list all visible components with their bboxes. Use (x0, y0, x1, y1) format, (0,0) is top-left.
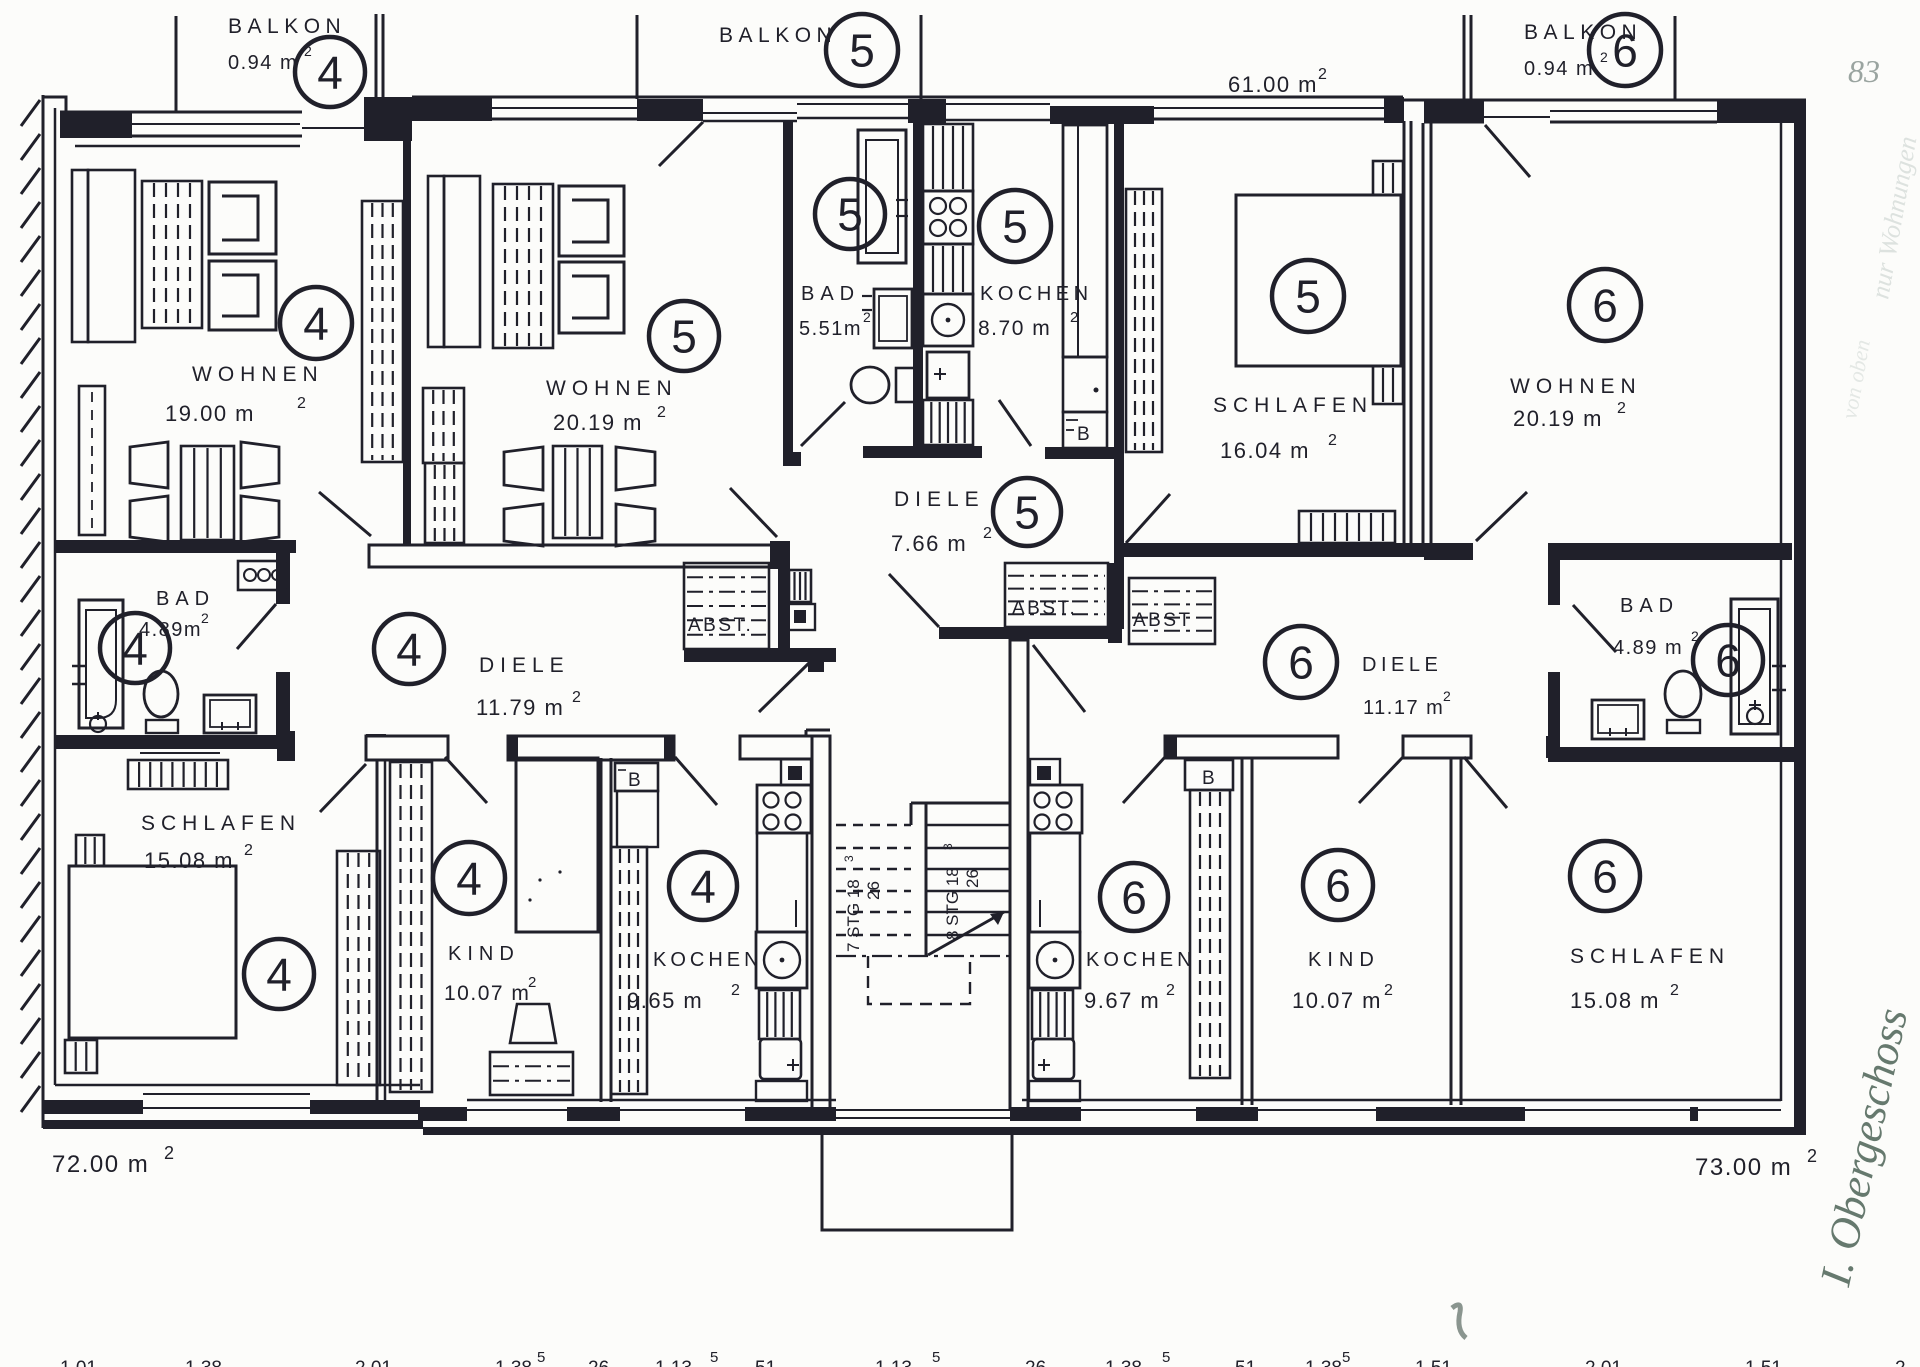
svg-text:BALKON: BALKON (719, 24, 837, 47)
svg-text:20.19 m: 20.19 m (1513, 406, 1603, 431)
svg-text:2.01: 2.01 (355, 1358, 392, 1367)
svg-text:2: 2 (297, 395, 306, 412)
svg-text:BAD: BAD (156, 588, 215, 610)
svg-text:9.67 m: 9.67 m (1084, 988, 1160, 1013)
svg-text:1.01: 1.01 (60, 1358, 97, 1367)
svg-text:4: 4 (303, 298, 329, 350)
svg-text:7.66 m: 7.66 m (891, 531, 967, 556)
svg-text:5.51m: 5.51m (799, 318, 862, 340)
svg-text:51: 51 (1235, 1358, 1256, 1367)
svg-text:5: 5 (932, 1349, 940, 1366)
svg-text:5: 5 (1162, 1349, 1170, 1366)
svg-text:1.38: 1.38 (1305, 1358, 1342, 1367)
svg-text:DIELE: DIELE (479, 654, 570, 677)
svg-text:2: 2 (1895, 1358, 1906, 1367)
svg-text:WOHNEN: WOHNEN (192, 363, 324, 386)
svg-text:5: 5 (849, 25, 875, 77)
svg-text:2: 2 (657, 404, 666, 421)
svg-text:ABST.: ABST. (688, 615, 753, 636)
svg-text:2: 2 (528, 974, 536, 991)
svg-text:8 STG 18: 8 STG 18 (943, 867, 962, 940)
svg-text:19.00 m: 19.00 m (165, 401, 255, 426)
svg-text:WOHNEN: WOHNEN (1510, 375, 1642, 398)
svg-text:5: 5 (1295, 271, 1321, 323)
svg-text:B: B (1202, 768, 1215, 789)
svg-text:5: 5 (1002, 201, 1028, 253)
svg-text:2: 2 (983, 525, 992, 542)
svg-text:KOCHEN: KOCHEN (980, 283, 1093, 305)
svg-text:DIELE: DIELE (894, 488, 985, 511)
svg-text:KOCHEN: KOCHEN (653, 949, 763, 971)
svg-text:WOHNEN: WOHNEN (546, 377, 678, 400)
svg-text:11.17 m: 11.17 m (1363, 697, 1444, 719)
svg-text:7 STG 18: 7 STG 18 (844, 879, 863, 952)
svg-text:2.01: 2.01 (1585, 1358, 1622, 1367)
svg-text:83: 83 (1848, 53, 1880, 89)
svg-text:2: 2 (1443, 688, 1451, 704)
svg-text:6: 6 (1612, 25, 1638, 77)
svg-text:4.89m: 4.89m (139, 619, 202, 641)
svg-text:26: 26 (864, 881, 883, 900)
svg-text:73.00 m: 73.00 m (1695, 1154, 1792, 1181)
svg-text:2: 2 (1600, 49, 1608, 65)
svg-text:61.00 m: 61.00 m (1228, 72, 1318, 97)
svg-text:10.07 m: 10.07 m (444, 982, 530, 1005)
svg-text:5: 5 (1014, 487, 1040, 539)
svg-text:4: 4 (690, 861, 716, 913)
svg-text:9.65 m: 9.65 m (627, 988, 703, 1013)
svg-text:1.38: 1.38 (1105, 1358, 1142, 1367)
svg-text:BALKON: BALKON (228, 15, 346, 38)
svg-text:2: 2 (1670, 982, 1679, 999)
svg-text:26: 26 (963, 869, 982, 888)
svg-text:DIELE: DIELE (1362, 654, 1442, 676)
svg-text:2: 2 (572, 689, 581, 706)
svg-text:KIND: KIND (1308, 949, 1380, 971)
svg-text:SCHLAFEN: SCHLAFEN (141, 812, 301, 835)
svg-text:72.00 m: 72.00 m (52, 1151, 149, 1178)
svg-text:4: 4 (266, 949, 292, 1001)
svg-text:3: 3 (941, 843, 955, 850)
svg-text:6: 6 (1715, 635, 1741, 687)
svg-text:15.08 m: 15.08 m (1570, 988, 1660, 1013)
svg-text:2: 2 (1691, 628, 1699, 644)
svg-text:B: B (1077, 424, 1090, 445)
svg-text:2: 2 (244, 842, 253, 859)
svg-text:4: 4 (456, 853, 482, 905)
svg-text:2: 2 (1328, 432, 1337, 449)
svg-text:SCHLAFEN: SCHLAFEN (1570, 945, 1730, 968)
svg-text:5: 5 (710, 1349, 718, 1366)
svg-text:1.13: 1.13 (655, 1358, 692, 1367)
svg-text:26: 26 (588, 1358, 609, 1367)
svg-text:4: 4 (317, 47, 343, 99)
svg-text:2: 2 (1617, 400, 1626, 417)
svg-text:1.38: 1.38 (185, 1358, 222, 1367)
svg-text:2: 2 (164, 1143, 174, 1163)
svg-text:SCHLAFEN: SCHLAFEN (1213, 394, 1373, 417)
svg-text:15.08 m: 15.08 m (144, 848, 234, 873)
svg-text:KIND: KIND (448, 943, 520, 965)
svg-text:0.94 m: 0.94 m (1524, 58, 1594, 80)
svg-text:1.51: 1.51 (1415, 1358, 1452, 1367)
svg-text:6: 6 (1325, 860, 1351, 912)
svg-text:8.70 m: 8.70 m (978, 317, 1051, 340)
svg-text:5: 5 (837, 189, 863, 241)
svg-text:1.13: 1.13 (875, 1358, 912, 1367)
svg-text:ABST.: ABST. (1012, 598, 1077, 619)
svg-text:16.04 m: 16.04 m (1220, 438, 1310, 463)
svg-text:2: 2 (1318, 66, 1327, 83)
svg-text:6: 6 (1592, 851, 1618, 903)
svg-text:1.51: 1.51 (1745, 1358, 1782, 1367)
svg-text:26: 26 (1025, 1358, 1046, 1367)
svg-text:5: 5 (671, 311, 697, 363)
svg-text:2: 2 (1166, 982, 1175, 999)
svg-text:4: 4 (396, 624, 422, 676)
svg-text:51: 51 (755, 1358, 776, 1367)
svg-text:10.07 m: 10.07 m (1292, 988, 1382, 1013)
svg-text:BAD: BAD (1620, 595, 1679, 617)
svg-text:5: 5 (537, 1349, 545, 1366)
svg-text:3: 3 (842, 855, 856, 862)
svg-text:B: B (628, 770, 641, 791)
svg-text:5: 5 (1342, 1349, 1350, 1366)
svg-text:ABST: ABST (1133, 610, 1193, 631)
svg-text:2: 2 (1807, 1146, 1817, 1166)
svg-text:4.89 m: 4.89 m (1613, 637, 1683, 659)
svg-text:0.94 m: 0.94 m (228, 52, 298, 74)
svg-text:6: 6 (1121, 872, 1147, 924)
svg-text:2: 2 (731, 982, 740, 999)
svg-text:BAD: BAD (801, 283, 860, 305)
svg-text:2: 2 (201, 610, 209, 626)
svg-text:KOCHEN: KOCHEN (1086, 949, 1196, 971)
svg-text:2: 2 (863, 309, 871, 325)
svg-text:1.38: 1.38 (495, 1358, 532, 1367)
svg-text:2: 2 (1384, 982, 1393, 999)
svg-text:11.79 m: 11.79 m (476, 695, 564, 720)
svg-text:6: 6 (1288, 637, 1314, 689)
svg-text:6: 6 (1592, 280, 1618, 332)
svg-text:20.19 m: 20.19 m (553, 410, 643, 435)
